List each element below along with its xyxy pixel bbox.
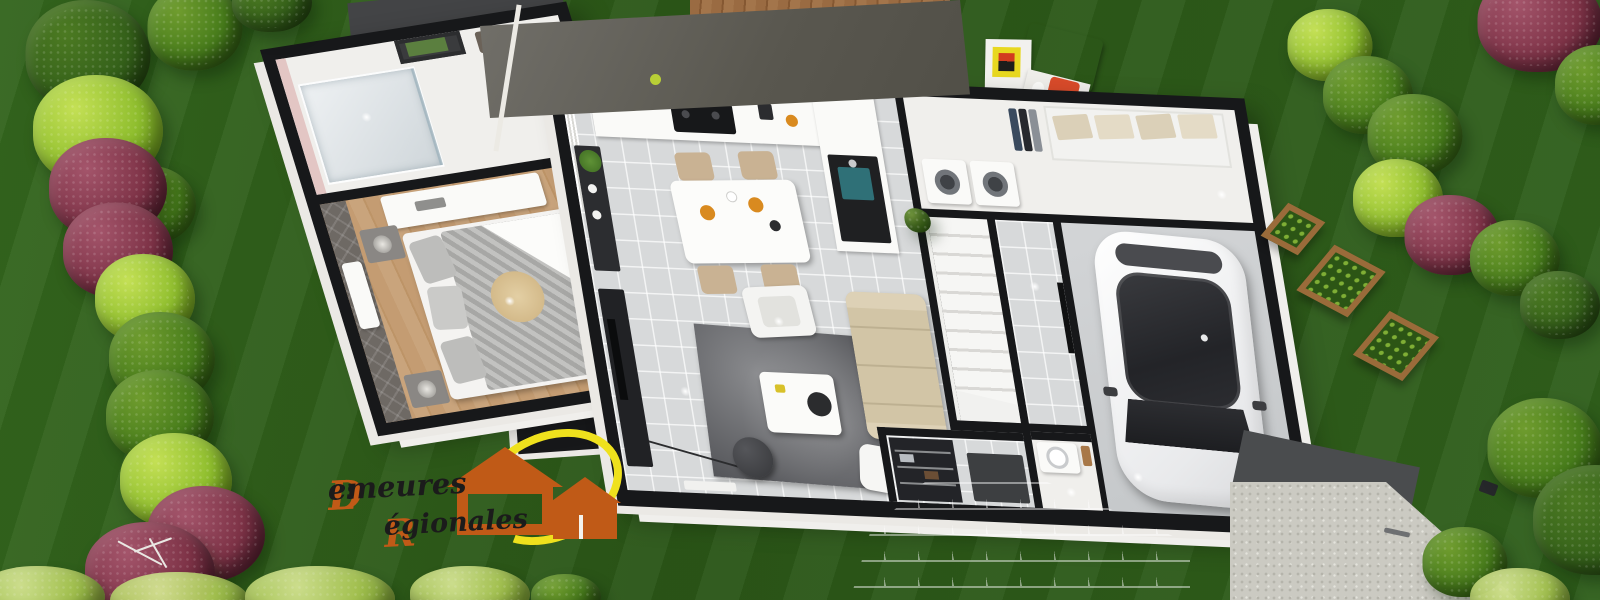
hedge-bush <box>531 574 601 600</box>
bush <box>232 0 312 32</box>
storage-box <box>1052 114 1094 140</box>
bush <box>1520 271 1600 339</box>
closet-clothes <box>899 454 914 463</box>
main-body <box>545 68 1318 536</box>
dining-chair <box>737 151 779 180</box>
logo-house-small-door <box>579 515 583 539</box>
ceiling-light <box>680 386 692 397</box>
tree-branch <box>134 537 172 553</box>
tree-branch <box>149 538 168 568</box>
kitchen-sink <box>837 167 874 201</box>
garden-scene: Les Demeures Régionales <box>0 0 1600 600</box>
ceiling-light <box>1216 189 1228 200</box>
logo: Les Demeures Régionales <box>315 425 655 560</box>
sail-ball <box>650 74 661 85</box>
tree-branch <box>117 540 162 565</box>
coffee-maker <box>757 103 774 120</box>
car-rear-window <box>1114 242 1223 274</box>
wc-towel <box>1080 446 1092 467</box>
raised-planter <box>1353 311 1439 381</box>
dining-chair <box>696 265 738 294</box>
closet-clothes <box>924 471 939 480</box>
raised-planter <box>1296 245 1385 318</box>
storage-box <box>1094 114 1135 139</box>
shower <box>297 66 444 185</box>
car-mirror <box>1103 386 1118 396</box>
storage-box <box>1177 114 1218 139</box>
car-roof-glass <box>1113 270 1243 412</box>
laundry-room <box>903 96 1254 223</box>
raised-planter <box>1261 203 1326 256</box>
logo-house-small-roof <box>549 477 621 503</box>
garden-light <box>1478 479 1498 496</box>
dining-table <box>669 180 812 264</box>
decor-item-yellow <box>774 384 785 393</box>
logo-house-small <box>547 477 623 539</box>
ceiling-light <box>1029 281 1041 292</box>
stair-landing <box>956 390 1021 423</box>
radiator <box>683 480 736 491</box>
hedge-bush <box>245 566 395 600</box>
storage-box <box>1135 113 1177 139</box>
logo-house-small-body <box>553 501 617 539</box>
car-mirror <box>1252 401 1267 411</box>
dining-chair <box>674 152 716 181</box>
playhouse-window-pane <box>998 53 1014 71</box>
car-windshield <box>1120 398 1256 455</box>
hedge-bush <box>410 566 530 600</box>
bush <box>148 0 243 71</box>
